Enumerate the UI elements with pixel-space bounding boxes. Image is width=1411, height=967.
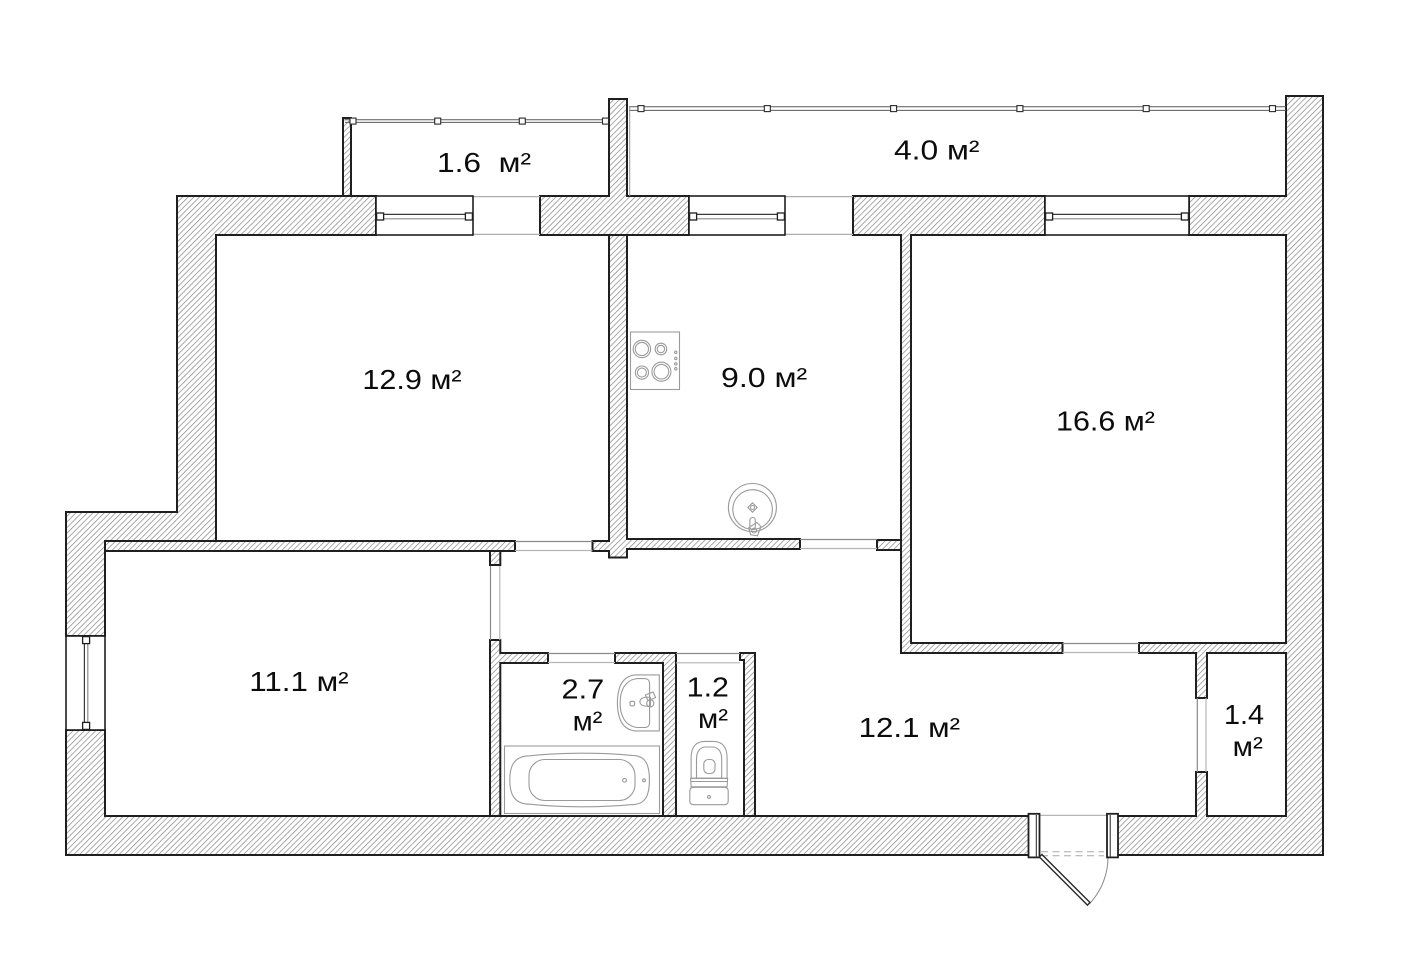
svg-text:9.0 м²: 9.0 м² <box>721 362 807 393</box>
svg-text:м²: м² <box>573 706 603 737</box>
svg-text:1.2: 1.2 <box>687 672 729 703</box>
svg-text:м²: м² <box>1233 731 1263 762</box>
svg-text:4.0 м²: 4.0 м² <box>894 135 980 166</box>
svg-text:м²: м² <box>698 703 728 734</box>
svg-text:12.1 м²: 12.1 м² <box>859 712 960 743</box>
svg-text:12.9 м²: 12.9 м² <box>362 364 461 395</box>
svg-text:1.6 м²: 1.6 м² <box>437 147 531 178</box>
svg-text:11.1 м²: 11.1 м² <box>249 666 348 697</box>
svg-text:1.4: 1.4 <box>1224 699 1264 730</box>
svg-text:2.7: 2.7 <box>562 674 605 705</box>
svg-text:16.6 м²: 16.6 м² <box>1056 405 1155 436</box>
